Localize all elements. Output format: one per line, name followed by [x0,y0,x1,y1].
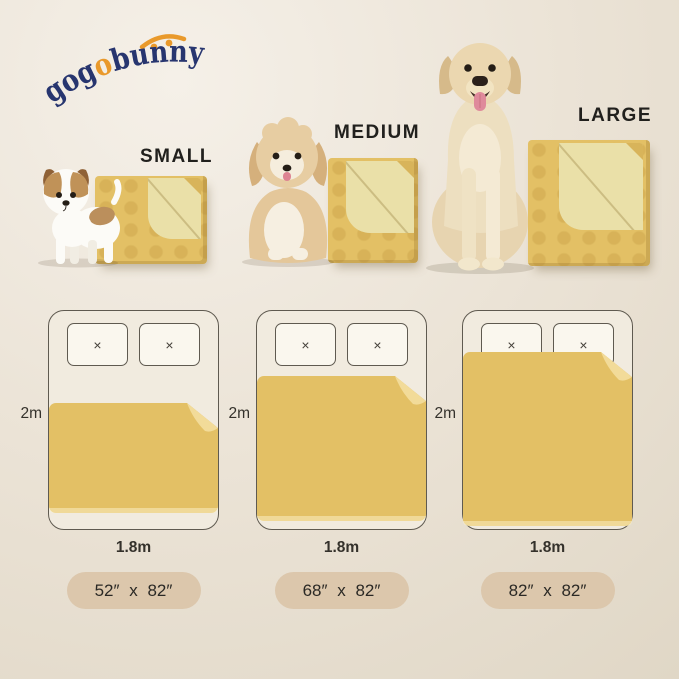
size-pill-small: 52″ x 82″ [67,572,201,609]
pillow-row: × × [257,323,426,366]
size-label-small: SMALL [140,146,213,168]
large-blanket-photo [528,140,650,266]
logo-text-suffix: bunny [107,34,207,78]
dog-head [249,117,327,188]
blanket-coverage-large [463,352,632,526]
pillow: × [139,323,200,366]
size-label-large: LARGE [578,105,652,127]
pillow-row: × × [49,323,218,366]
fluffy-puppy-illustration [236,112,340,268]
dog-body [432,94,528,271]
brand-logo: gogobunny [46,28,222,120]
bed-height-label: 2m [426,405,456,423]
dog-body [249,188,327,263]
jack-russell-puppy-illustration [30,150,126,268]
blanket-fold-corner [346,161,414,233]
pillow-x-icon: × [93,337,101,353]
blanket-folded-corner-icon [394,376,426,406]
bed-diagram-medium: 2m × × 1.8m 68″ x 82″ [256,310,427,609]
pillow-x-icon: × [507,337,515,353]
blanket-coverage-medium [257,376,426,521]
size-comparison-infographic: gogobunny SMALL MEDIUM LARGE [0,0,679,679]
size-label-medium: MEDIUM [334,122,420,144]
medium-blanket-photo [328,158,418,263]
blanket-fold-corner [148,178,202,239]
bed-height-label: 2m [220,405,250,423]
blanket-fold-corner [559,143,643,230]
blanket-coverage-small [49,403,218,513]
bed-diagram-large: 2m × × 1.8m 82″ x 82″ [462,310,633,609]
pillow-x-icon: × [165,337,173,353]
pillow: × [275,323,336,366]
dog-tail [114,182,118,202]
bed-outline: × × [48,310,219,530]
bed-diagram-small: 2m × × 1.8m 52″ x 82″ [48,310,219,609]
bed-outline: × × [256,310,427,530]
bed-width-label: 1.8m [256,539,427,557]
pillow-x-icon: × [301,337,309,353]
pillow-x-icon: × [373,337,381,353]
bed-width-label: 1.8m [48,539,219,557]
size-pill-large: 82″ x 82″ [481,572,615,609]
bed-outline: × × [462,310,633,530]
golden-retriever-illustration [420,30,544,276]
dog-head [439,43,521,111]
blanket-folded-corner-icon [186,403,218,433]
pillow: × [347,323,408,366]
pillow-x-icon: × [579,337,587,353]
pillow: × [67,323,128,366]
bed-height-label: 2m [12,405,42,423]
size-pill-medium: 68″ x 82″ [275,572,409,609]
bed-width-label: 1.8m [462,539,633,557]
dog-head [43,169,89,215]
brand-logo-text: gogobunny [46,34,207,110]
